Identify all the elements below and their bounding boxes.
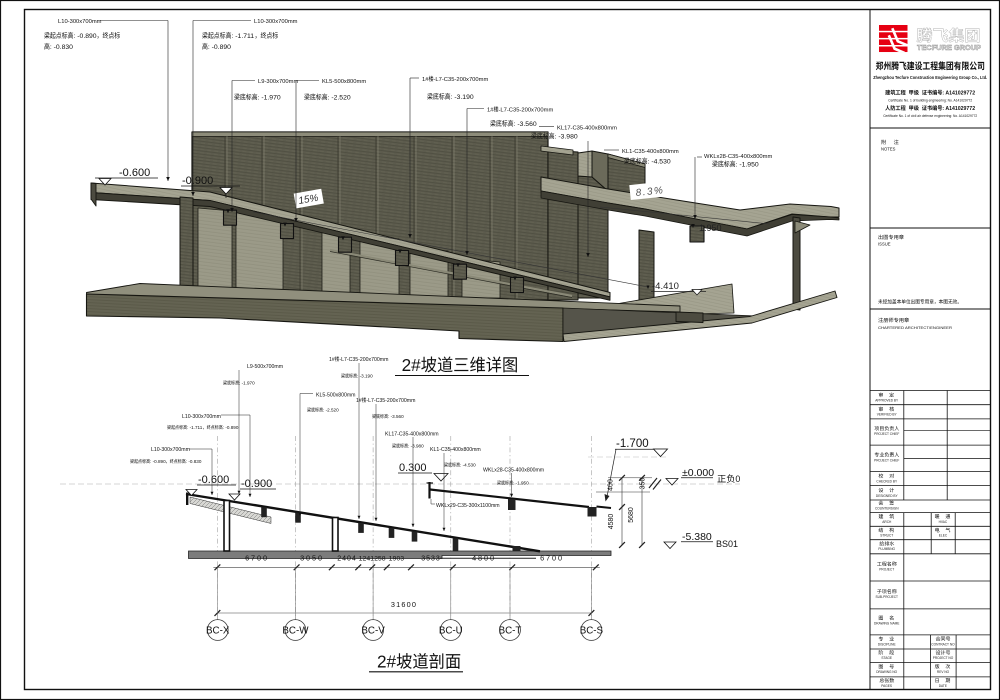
svg-text:: -4.530: : -4.530	[648, 159, 671, 166]
svg-text:STRUCT: STRUCT	[880, 534, 893, 538]
svg-text:DRAWING NAME: DRAWING NAME	[874, 622, 899, 626]
svg-text:: -0.830: : -0.830	[50, 44, 73, 51]
svg-text:: -0.890: : -0.890	[223, 425, 239, 430]
svg-text:: -3.560: : -3.560	[514, 121, 537, 128]
svg-text:3050: 3050	[300, 554, 324, 563]
svg-text:PAGES: PAGES	[881, 684, 892, 688]
svg-text:STAGE: STAGE	[881, 656, 892, 660]
svg-text:VERIFIED BY: VERIFIED BY	[877, 413, 898, 417]
svg-text:L10-300x700mm: L10-300x700mm	[58, 19, 102, 25]
svg-text:4580: 4580	[608, 514, 615, 530]
svg-text:KL1-C35-400x800mm: KL1-C35-400x800mm	[622, 149, 679, 155]
svg-text:BC-X: BC-X	[206, 626, 230, 637]
svg-text:31600: 31600	[391, 600, 417, 609]
svg-text:WKLx28-C35-400x800mm: WKLx28-C35-400x800mm	[704, 154, 772, 160]
svg-text:: -3.560: : -3.560	[388, 414, 404, 419]
svg-text:: -4.530: : -4.530	[460, 463, 476, 468]
svg-text:1#: 1#	[487, 108, 494, 114]
svg-text:ARCH: ARCH	[882, 520, 892, 524]
svg-text:2404: 2404	[337, 556, 357, 563]
svg-text:WKLx29-C35-300x1100mm: WKLx29-C35-300x1100mm	[436, 503, 500, 509]
svg-text:6700: 6700	[245, 554, 269, 563]
svg-text:5680: 5680	[628, 507, 635, 523]
svg-text:1903: 1903	[389, 556, 405, 563]
svg-text:: A141029772: : A141029772	[942, 91, 975, 97]
svg-text:Certificate No. 1 of building: Certificate No. 1 of building engineerin…	[888, 98, 973, 103]
svg-text:PROJECT CHIEF: PROJECT CHIEF	[874, 458, 899, 462]
svg-text:3533: 3533	[421, 556, 441, 563]
svg-text:: -0.830: : -0.830	[186, 459, 202, 464]
svg-text:Certificate No. 1 of civil air: Certificate No. 1 of civil air defense e…	[883, 113, 978, 118]
svg-text:: -1.950: : -1.950	[513, 481, 529, 486]
svg-text:: -3.980: : -3.980	[555, 134, 578, 141]
svg-text:L9-300x700mm: L9-300x700mm	[258, 79, 298, 85]
svg-text:L10-300x700mm: L10-300x700mm	[254, 19, 298, 25]
svg-text:0: 0	[735, 474, 740, 484]
svg-text:REV NO: REV NO	[937, 670, 950, 674]
svg-text:DISCIPLINE: DISCIPLINE	[878, 642, 896, 646]
svg-text:-1.700: -1.700	[616, 438, 649, 450]
svg-text:L9-500x700mm: L9-500x700mm	[247, 364, 283, 370]
svg-text:KL5-500x800mm: KL5-500x800mm	[322, 79, 366, 85]
svg-text:: -2.520: : -2.520	[323, 408, 339, 413]
svg-text:PLUMBING: PLUMBING	[878, 547, 895, 551]
svg-text:400: 400	[608, 479, 615, 491]
svg-text:NOTES: NOTES	[881, 147, 896, 152]
svg-text:KL1-C35-400x800mm: KL1-C35-400x800mm	[430, 447, 481, 453]
svg-text:BS01: BS01	[716, 539, 738, 549]
svg-text:CONTRACT NO: CONTRACT NO	[931, 642, 955, 646]
svg-text:HVAC: HVAC	[939, 520, 948, 524]
svg-text:-L7-C35-200x700mm: -L7-C35-200x700mm	[434, 77, 489, 83]
svg-text:: -3.980: : -3.980	[408, 444, 424, 449]
svg-text:-5.380: -5.380	[682, 531, 712, 543]
svg-text:1#: 1#	[356, 398, 362, 404]
svg-text:WKLx28-C35-400x800mm: WKLx28-C35-400x800mm	[483, 468, 544, 474]
svg-text:DESIGNED BY: DESIGNED BY	[876, 494, 899, 498]
svg-text:KL17-C35-400x800mm: KL17-C35-400x800mm	[385, 432, 439, 438]
svg-text:1.950: 1.950	[699, 223, 722, 233]
svg-text:: -0.890: : -0.890	[150, 459, 166, 464]
svg-text:L10-300x700mm: L10-300x700mm	[182, 414, 221, 420]
svg-text:PROJECT NO: PROJECT NO	[933, 656, 954, 660]
svg-text:APPROVED BY: APPROVED BY	[875, 399, 899, 403]
svg-text:258: 258	[374, 556, 386, 563]
svg-text:4800: 4800	[472, 554, 496, 563]
svg-text:-4.410: -4.410	[652, 281, 679, 292]
svg-text:SUB-PROJECT: SUB-PROJECT	[876, 595, 899, 599]
svg-text:BC-U: BC-U	[439, 626, 463, 637]
svg-text:: -2.520: : -2.520	[328, 95, 351, 102]
svg-text:-0.900: -0.900	[241, 478, 272, 490]
svg-text:: -1.970: : -1.970	[239, 381, 255, 386]
svg-text:: -1.950: : -1.950	[736, 162, 759, 169]
svg-text:: -1.711: : -1.711	[187, 425, 203, 430]
svg-text:Zhengzhou Tecfure Construction: Zhengzhou Tecfure Construction Engineeri…	[873, 75, 987, 80]
svg-text:±0.000: ±0.000	[682, 467, 714, 479]
svg-text:2#: 2#	[402, 355, 422, 375]
svg-text:PROJECT CHIEF: PROJECT CHIEF	[874, 432, 899, 436]
svg-text:KL17-C35-400x800mm: KL17-C35-400x800mm	[557, 126, 617, 132]
svg-text:: A141029772: : A141029772	[942, 106, 975, 112]
svg-text:BC-T: BC-T	[499, 626, 522, 637]
svg-text:TECFURE GROUP: TECFURE GROUP	[917, 43, 981, 52]
svg-text:CHECKED BY: CHECKED BY	[876, 480, 898, 484]
svg-text:: -3.190: : -3.190	[451, 94, 474, 101]
svg-text:: -0.890: : -0.890	[208, 44, 231, 51]
svg-text:ELEC: ELEC	[939, 534, 948, 538]
svg-text:L10-300x700mm: L10-300x700mm	[151, 447, 190, 453]
svg-text:BC-V: BC-V	[361, 626, 385, 637]
svg-text:1241: 1241	[359, 556, 375, 563]
svg-text:BC-S: BC-S	[580, 626, 604, 637]
svg-text:KL5-500x800mm: KL5-500x800mm	[316, 393, 356, 399]
svg-text:: -3.190: : -3.190	[357, 374, 373, 379]
svg-text:: -1.711: : -1.711	[232, 33, 255, 40]
svg-text:CHARTERED ARCHITECT/ENGINEER: CHARTERED ARCHITECT/ENGINEER	[878, 325, 952, 330]
svg-text:-0.600: -0.600	[119, 167, 150, 179]
svg-text:-L7-C35-200x700mm: -L7-C35-200x700mm	[499, 108, 554, 114]
svg-text:DRAWING NO: DRAWING NO	[876, 670, 897, 674]
svg-text:-0.900: -0.900	[182, 175, 213, 187]
svg-text:: -0.890: : -0.890	[74, 33, 97, 40]
svg-text:BC-W: BC-W	[282, 626, 309, 637]
svg-text:2#: 2#	[377, 652, 397, 672]
svg-text:DATE: DATE	[939, 684, 947, 688]
svg-text:COUNTERSIGN: COUNTERSIGN	[875, 507, 899, 511]
svg-text:350: 350	[640, 478, 647, 490]
svg-text:: -1.970: : -1.970	[258, 95, 281, 102]
svg-text:6700: 6700	[540, 554, 564, 563]
svg-text:-L7-C35-200x700mm: -L7-C35-200x700mm	[339, 357, 388, 363]
svg-text:-L7-C35-200x700mm: -L7-C35-200x700mm	[366, 398, 415, 404]
svg-text:1#: 1#	[329, 357, 335, 363]
svg-text:PROJECT: PROJECT	[879, 568, 894, 572]
svg-text:ISSUE: ISSUE	[878, 242, 891, 247]
svg-text:-0.600: -0.600	[198, 474, 229, 486]
svg-text:1#: 1#	[422, 77, 429, 83]
